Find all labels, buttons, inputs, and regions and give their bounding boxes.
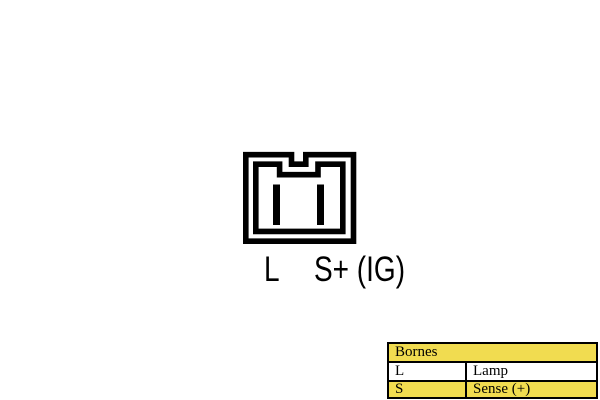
connector-pin-left <box>273 185 280 226</box>
connector-inner-outline <box>256 164 343 231</box>
table-header-cell: Bornes <box>389 344 596 361</box>
terminals-table: Bornes L Lamp S Sense (+) <box>387 342 598 399</box>
description-cell-sense: Sense (+) <box>467 382 596 397</box>
connector-pin-right <box>317 185 324 226</box>
connector-diagram <box>0 0 600 400</box>
connector-outer-outline <box>246 155 354 242</box>
pin-label-right: S+ (IG) <box>314 252 405 287</box>
pin-label-left: L <box>264 252 280 287</box>
description-cell-lamp: Lamp <box>467 363 596 380</box>
terminal-cell-s: S <box>389 382 465 397</box>
terminal-cell-l: L <box>389 363 465 380</box>
page: L S+ (IG) Bornes L Lamp S Sense (+) <box>0 0 600 400</box>
